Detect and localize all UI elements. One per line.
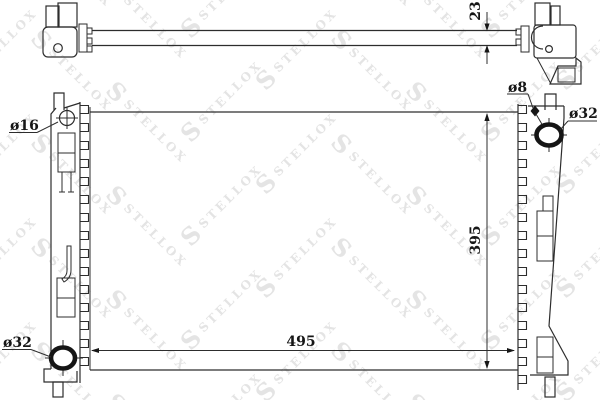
pipe-d32-label: ø32 (3, 335, 32, 351)
right-filler-tube (535, 3, 550, 25)
right-fitting-tooth (516, 39, 521, 45)
right-filler-tube2 (551, 6, 560, 25)
leader-line (31, 350, 51, 358)
left-fitting-tooth (87, 46, 92, 52)
left-gasket-teeth (80, 104, 90, 372)
left-tank (44, 93, 83, 397)
bottom-left-pipe (51, 348, 75, 369)
dim-arrow-left (91, 348, 99, 353)
left-filler-cap (58, 3, 77, 27)
label-top-right-pipe: ø32 (560, 106, 598, 130)
left-tank-shoulder (64, 103, 80, 108)
left-tank-top-tube (54, 93, 64, 110)
dim-arrow-down (484, 361, 489, 369)
label-top-right-hole: ø8 (507, 80, 533, 108)
left-filler-tube (46, 6, 59, 27)
right-bracket-hole (546, 46, 553, 53)
top-side-view: 23 (43, 1, 581, 84)
left-inner-bracket (58, 153, 75, 172)
pipe-d32r-label: ø32 (569, 106, 598, 122)
radiator-drawing: 23 (0, 0, 600, 400)
right-tank-pin (545, 377, 555, 397)
right-inner-bracket (537, 211, 553, 236)
hole-d16-label: ø16 (10, 118, 39, 134)
dimension-thickness: 23 (468, 1, 490, 64)
front-view: 395 495 ø16 ø32 ø (2, 80, 598, 397)
left-pipe-fitting (79, 24, 87, 52)
leader-line (37, 122, 58, 133)
right-pipe-fitting (521, 26, 529, 52)
left-tank-pin (53, 382, 63, 397)
dimension-width: 495 (91, 334, 515, 353)
right-top-bracket (516, 3, 581, 84)
dim-arrow-right (507, 348, 515, 353)
right-tank (528, 94, 568, 397)
right-bracket-body (534, 25, 576, 58)
dim-height-label: 395 (468, 225, 484, 254)
top-right-hole-marker (531, 106, 540, 117)
left-tank-foot (44, 369, 77, 382)
core-top-profile (92, 31, 517, 46)
right-inner-bracket-low (537, 357, 553, 373)
right-inner-bracket (537, 236, 553, 261)
left-top-bracket (43, 3, 92, 57)
left-bracket-hole (54, 44, 63, 53)
core (90, 107, 518, 370)
left-fitting-tooth (87, 38, 92, 44)
right-foot-hole (558, 68, 575, 82)
right-inner-bracket-low (537, 337, 553, 357)
left-tank-left-edge (51, 108, 56, 369)
dim-arrow-up (484, 45, 489, 53)
top-right-pipe (537, 125, 562, 146)
dim-width-label: 495 (286, 334, 315, 350)
right-fitting-dome (532, 26, 544, 49)
dim-arrow-up (484, 113, 489, 121)
right-tank-top-tube (545, 94, 556, 110)
left-inner-bracket (58, 133, 75, 153)
right-bracket-foot (550, 58, 581, 84)
dimension-height: 395 (468, 113, 490, 369)
left-tank-clip (62, 246, 71, 282)
label-bottom-left-pipe: ø32 (2, 335, 51, 357)
dim-arrow-down (484, 24, 489, 32)
right-inner-bracket (543, 196, 553, 211)
technical-drawing-page: SSTELLOXSSTELLOXSSTELLOXSSTELLOXSSTELLOX… (0, 0, 600, 400)
left-bracket-body (43, 27, 77, 57)
right-gasket-teeth (518, 104, 528, 384)
dim-thickness-label: 23 (468, 1, 484, 20)
left-fitting-tooth (87, 28, 92, 34)
right-foot-strut (537, 58, 551, 84)
left-inner-bracket-low (57, 298, 75, 317)
